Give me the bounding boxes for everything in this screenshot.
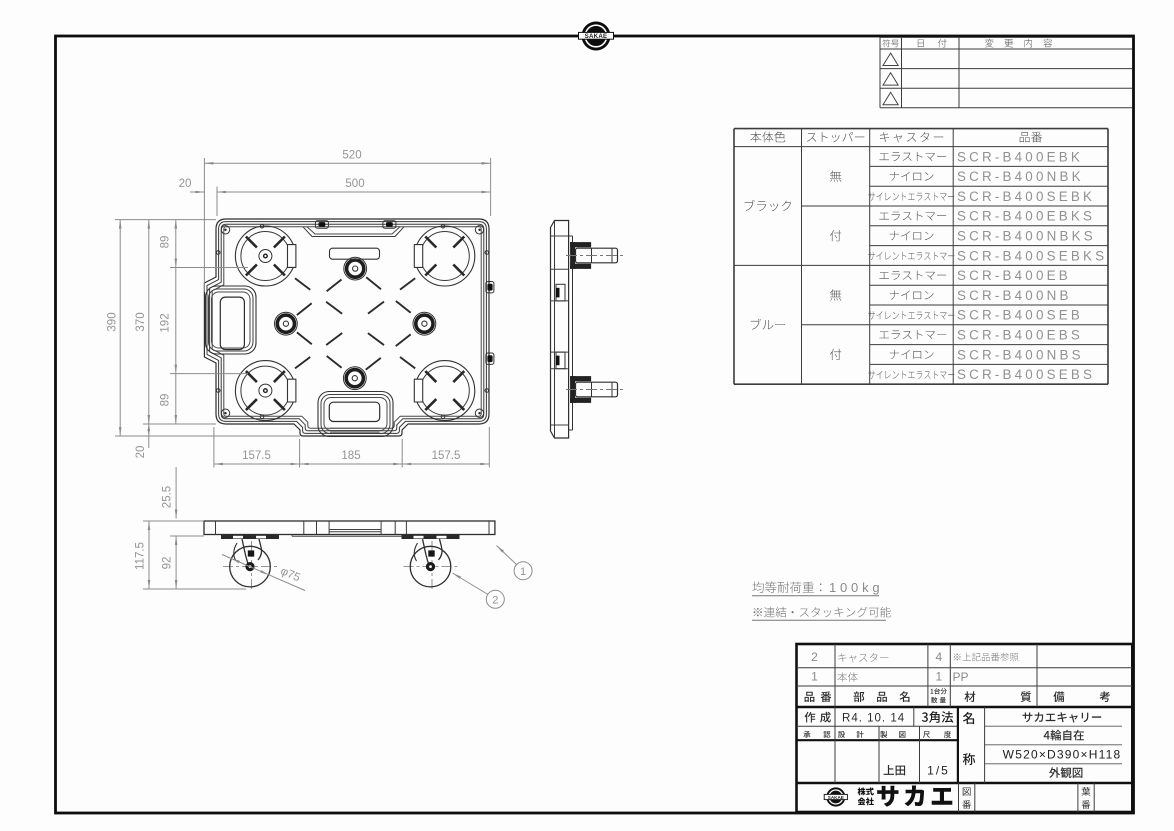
svg-text:SAKAE: SAKAE bbox=[585, 33, 608, 40]
svg-text:390: 390 bbox=[107, 312, 119, 331]
svg-text:SCR-B400NB: SCR-B400NB bbox=[957, 288, 1072, 303]
svg-text:SCR-B400SEBKS: SCR-B400SEBKS bbox=[957, 248, 1107, 263]
svg-text:2: 2 bbox=[811, 650, 818, 664]
svg-text:1: 1 bbox=[811, 670, 818, 684]
svg-text:SCR-B400SEB: SCR-B400SEB bbox=[957, 308, 1083, 323]
svg-text:370: 370 bbox=[135, 312, 147, 331]
svg-text:89: 89 bbox=[160, 394, 172, 407]
svg-text:SCR-B400SEBS: SCR-B400SEBS bbox=[957, 367, 1095, 382]
svg-text:20: 20 bbox=[135, 446, 147, 459]
svg-text:1: 1 bbox=[520, 566, 526, 578]
svg-text:4: 4 bbox=[935, 650, 942, 664]
svg-text:SCR-B400EBK: SCR-B400EBK bbox=[957, 149, 1083, 164]
svg-text:100kg: 100kg bbox=[829, 580, 883, 595]
svg-text:1: 1 bbox=[935, 670, 942, 684]
svg-text:520: 520 bbox=[342, 150, 361, 162]
svg-text:PP: PP bbox=[953, 670, 969, 684]
svg-text:89: 89 bbox=[160, 236, 172, 249]
svg-text:1/5: 1/5 bbox=[927, 764, 950, 778]
svg-text:92: 92 bbox=[162, 557, 174, 570]
svg-text:157.5: 157.5 bbox=[242, 450, 271, 462]
svg-text:185: 185 bbox=[341, 450, 360, 462]
svg-text:R4. 10. 14: R4. 10. 14 bbox=[842, 713, 905, 725]
svg-text:W520×D390×H118: W520×D390×H118 bbox=[1003, 748, 1122, 762]
svg-text:192: 192 bbox=[160, 313, 172, 332]
svg-text:SCR-B400NBS: SCR-B400NBS bbox=[957, 347, 1084, 362]
svg-text:117.5: 117.5 bbox=[135, 542, 147, 570]
svg-text:SCR-B400NBKS: SCR-B400NBKS bbox=[957, 229, 1096, 244]
svg-text:SCR-B400EBKS: SCR-B400EBKS bbox=[957, 209, 1095, 224]
svg-text:25.5: 25.5 bbox=[162, 486, 174, 508]
svg-text:SCR-B400NBK: SCR-B400NBK bbox=[957, 169, 1084, 184]
svg-text:SAKAE: SAKAE bbox=[828, 795, 844, 800]
svg-text:500: 500 bbox=[345, 178, 364, 190]
svg-text:157.5: 157.5 bbox=[432, 450, 461, 462]
svg-text:SCR-B400EB: SCR-B400EB bbox=[957, 268, 1071, 283]
svg-text:2: 2 bbox=[492, 595, 498, 607]
svg-text:SCR-B400EBS: SCR-B400EBS bbox=[957, 328, 1083, 343]
svg-text:20: 20 bbox=[179, 178, 192, 190]
svg-text:SCR-B400SEBK: SCR-B400SEBK bbox=[957, 189, 1095, 204]
